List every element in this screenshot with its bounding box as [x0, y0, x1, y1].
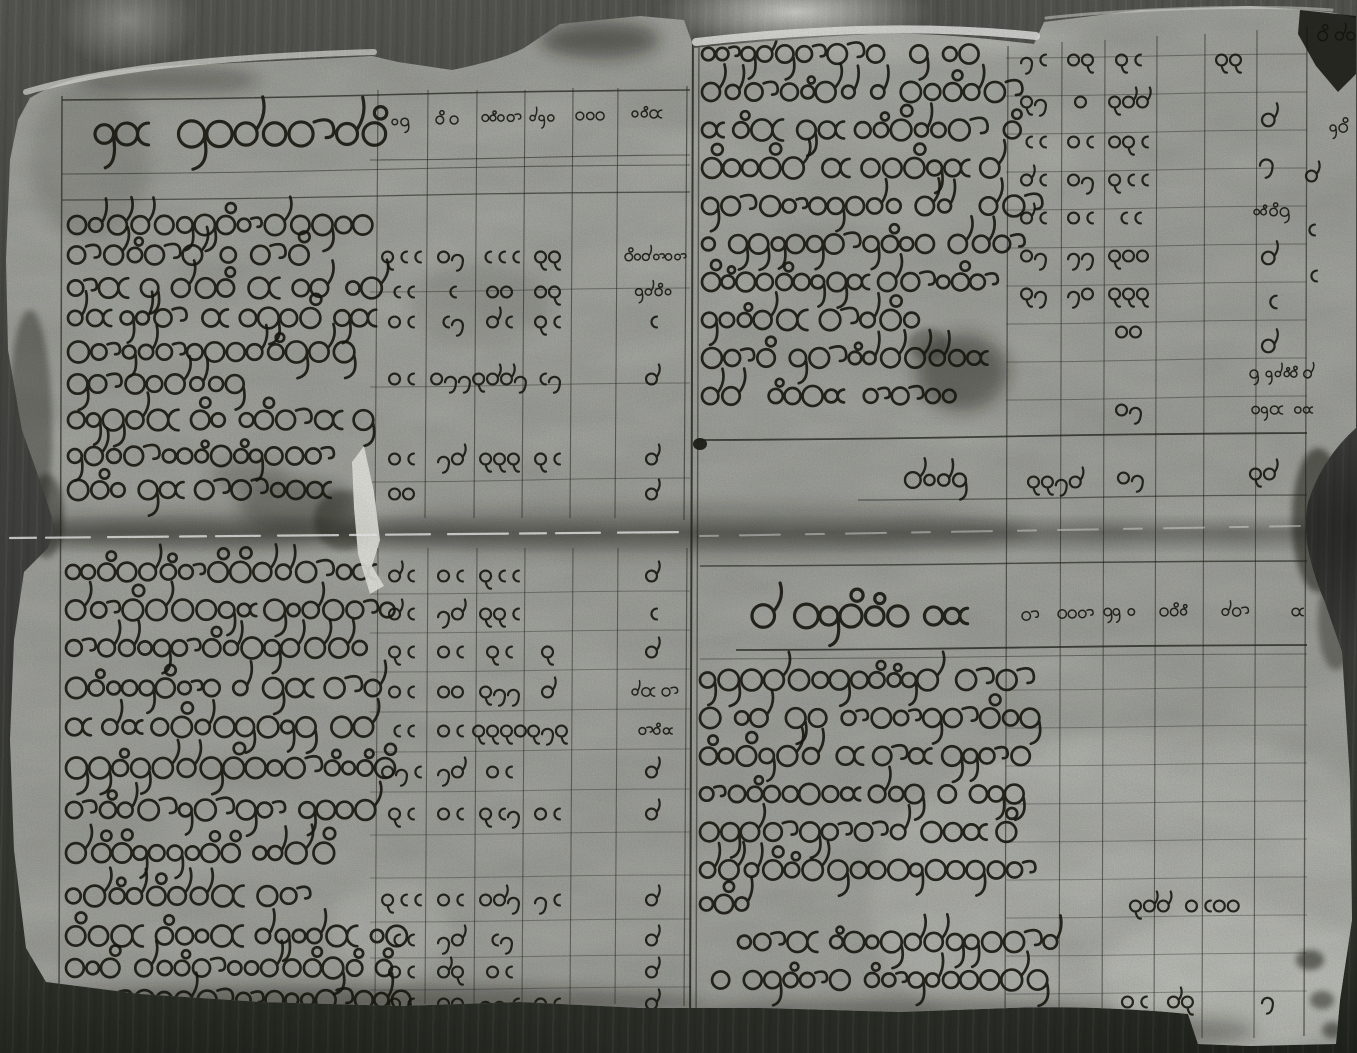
document-scan	[0, 0, 1357, 1053]
photograph-of-ledger	[0, 0, 1357, 1053]
photo-grain-overlay	[0, 0, 1357, 1053]
